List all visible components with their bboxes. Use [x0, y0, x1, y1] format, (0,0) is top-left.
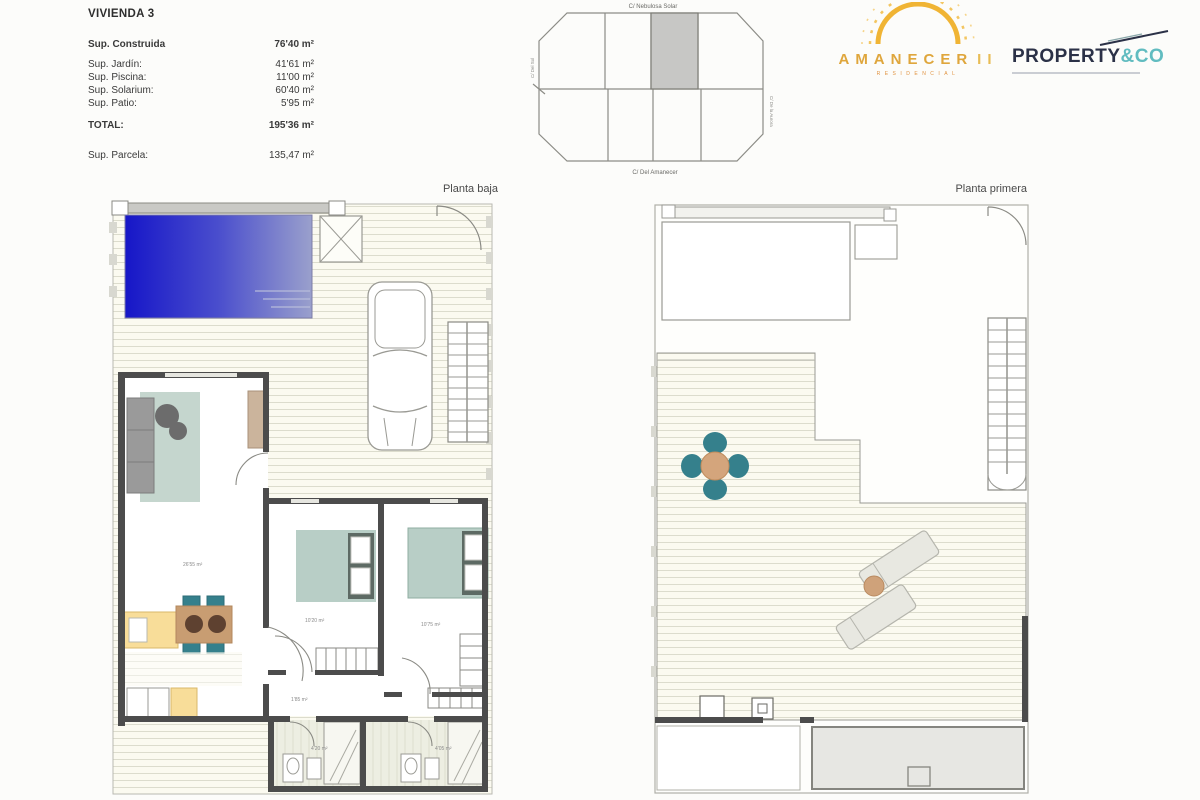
spec-value: 76'40 m² [274, 38, 314, 51]
top-fence [112, 201, 345, 215]
bed-1 [296, 530, 376, 602]
site-plan: C/ Nebulosa Solar C/ Del Amanecer C/ Del… [525, 0, 775, 182]
hall-label: 1'85 m² [291, 697, 308, 703]
highlighted-plot [651, 13, 698, 89]
amanecer-text: AMANECER [838, 51, 973, 68]
spec-value: 195'36 m² [269, 119, 314, 132]
spec-label: TOTAL: [88, 119, 124, 132]
spec-row-construida: Sup. Construida 76'40 m² [88, 38, 314, 51]
spec-row-patio: Sup. Patio: 5'95 m² [88, 97, 314, 110]
staircase [448, 322, 488, 442]
lounger-side-table [864, 576, 884, 596]
street-bottom-label: C/ Del Amanecer [632, 170, 677, 176]
sofa [127, 398, 154, 493]
amanecer-suffix: II [977, 51, 997, 68]
spec-row-solarium: Sup. Solarium: 60'40 m² [88, 84, 314, 97]
amanecer-subtitle: RESIDENCIAL [818, 71, 1018, 77]
spec-row-total: TOTAL: 195'36 m² [88, 119, 314, 132]
site-plan-outline [533, 13, 763, 161]
caption-planta-baja: Planta baja [398, 183, 498, 195]
spec-label: Sup. Parcela: [88, 149, 148, 162]
kitchen-appliances [127, 688, 197, 720]
bath1-label: 4'20 m² [311, 746, 328, 752]
planta-primera-plan [648, 196, 1033, 796]
spec-label: Sup. Patio: [88, 97, 137, 110]
upper-staircase [988, 318, 1026, 490]
spec-block: VIVIENDA 3 Sup. Construida 76'40 m² Sup.… [88, 8, 314, 162]
spec-value: 60'40 m² [275, 84, 314, 97]
roof-swoosh-icon [1012, 28, 1182, 46]
sideboard [248, 391, 265, 448]
amanecer-wordmark: AMANECERII [818, 51, 1018, 68]
bath2-label: 4'05 m² [435, 746, 452, 752]
bathroom-2 [366, 720, 484, 788]
spec-label: Sup. Piscina: [88, 71, 146, 84]
property-suffix: &CO [1121, 46, 1165, 67]
property-wordmark: PROPERTY&CO [1012, 46, 1182, 68]
spec-label: Sup. Construida [88, 38, 165, 51]
pool [125, 215, 312, 318]
spec-label: Sup. Solarium: [88, 84, 154, 97]
vivienda-title: VIVIENDA 3 [88, 8, 314, 20]
bedroom2-label: 10'75 m² [421, 622, 441, 628]
bed-2 [408, 528, 488, 598]
spec-value: 41'61 m² [275, 58, 314, 71]
spec-label: Sup. Jardín: [88, 58, 142, 71]
bathroom-1 [271, 720, 360, 788]
spec-value: 5'95 m² [281, 97, 314, 110]
spec-value: 11'00 m² [276, 71, 314, 84]
property-tagline [1012, 72, 1140, 74]
bedroom1-label: 10'20 m² [305, 618, 325, 624]
street-top-label: C/ Nebulosa Solar [629, 4, 678, 10]
spec-value: 135,47 m² [269, 149, 314, 162]
property-logo: PROPERTY&CO [1012, 28, 1182, 74]
floorplan-sheet: VIVIENDA 3 Sup. Construida 76'40 m² Sup.… [0, 0, 1200, 800]
skylight-box [855, 225, 897, 259]
planta-baja-plan: 26'55 m² 10'20 m² 10'75 m² 1'85 m² 4'20 … [105, 196, 500, 796]
wardrobe-1 [316, 648, 378, 672]
upper-room-outline [662, 222, 850, 320]
spec-row-parcela: Sup. Parcela: 135,47 m² [88, 149, 314, 162]
lower-terrace-planter [812, 727, 1024, 789]
spec-row-piscina: Sup. Piscina: 11'00 m² [88, 71, 314, 84]
outdoor-shower [320, 216, 362, 262]
kitchen-counter [124, 612, 178, 648]
caption-planta-primera: Planta primera [905, 183, 1027, 195]
amanecer-logo: AMANECERII RESIDENCIAL [818, 2, 1018, 77]
car [368, 282, 432, 450]
property-text: PROPERTY [1012, 46, 1121, 67]
sun-icon [818, 2, 1018, 46]
spec-row-jardin: Sup. Jardín: 41'61 m² [88, 58, 314, 71]
street-right-label: C/ De la Aurora [769, 96, 774, 127]
living-label: 26'55 m² [183, 562, 203, 568]
street-left-label: C/ Del Sol [530, 58, 535, 78]
kitchen-island [124, 652, 242, 686]
